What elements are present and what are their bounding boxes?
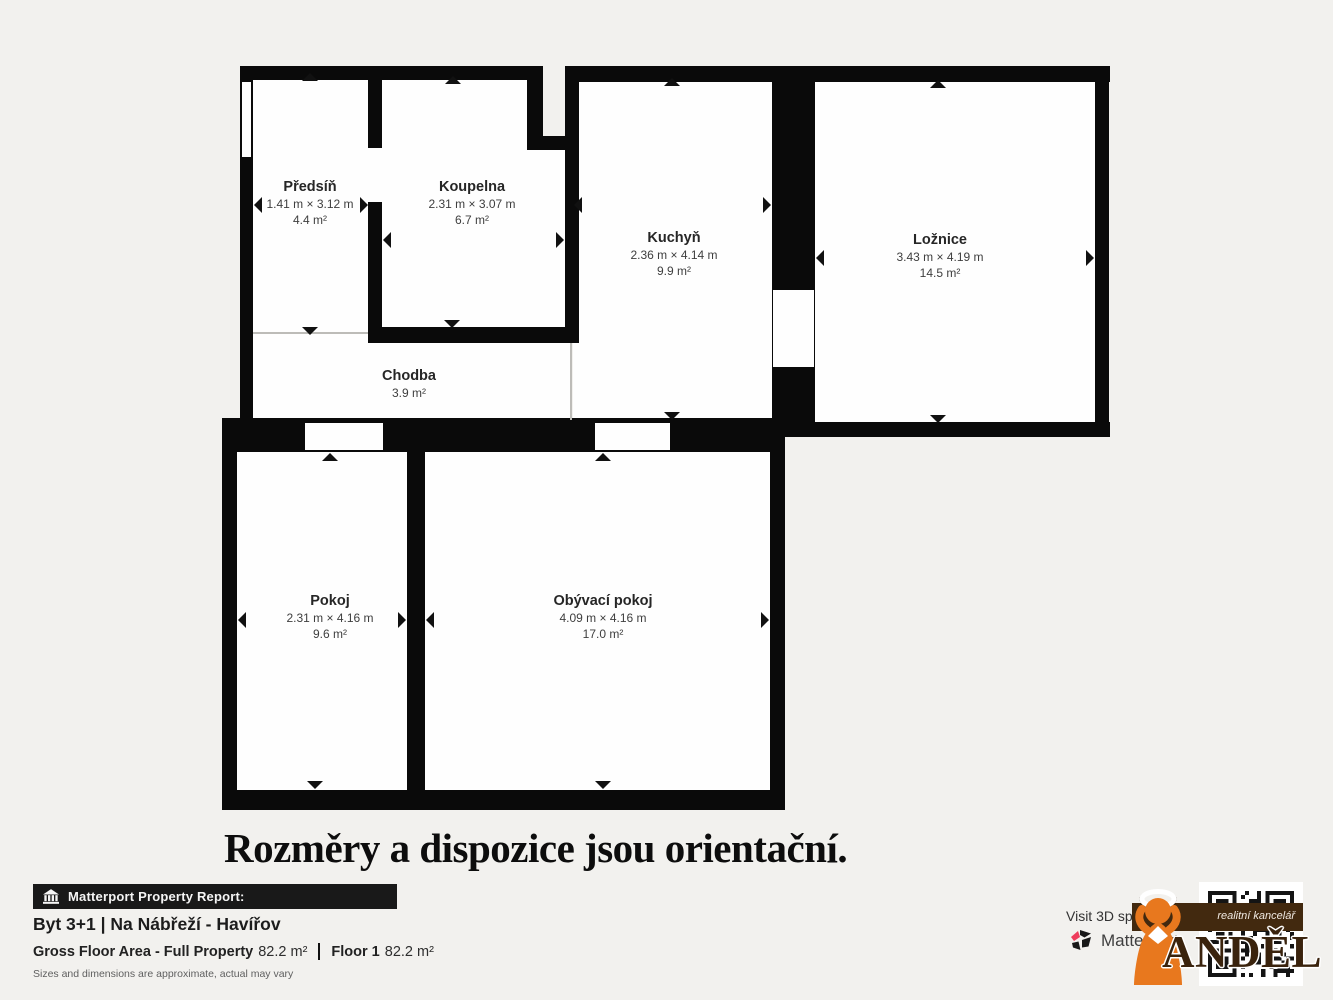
room-label-obyvaci-pokoj: Obývací pokoj 4.09 m × 4.16 m 17.0 m²	[493, 593, 713, 642]
disclaimer-text: Rozměry a dispozice jsou orientační.	[224, 824, 847, 872]
room-area: 6.7 m²	[362, 212, 582, 228]
agency-brand-name: ANDĚL	[1162, 926, 1322, 978]
room-dimensions: 2.36 m × 4.14 m	[564, 247, 784, 263]
wall-arrow-icon	[444, 320, 460, 328]
room-name: Kuchyň	[564, 230, 784, 247]
matterport-logo-icon	[1068, 927, 1095, 954]
report-banner-label: Matterport Property Report:	[68, 889, 245, 904]
door-opening	[595, 423, 670, 450]
wall-arrow-icon	[595, 453, 611, 461]
room-name: Koupelna	[362, 179, 582, 196]
room-area: 3.9 m²	[299, 385, 519, 401]
wall-arrow-icon	[595, 781, 611, 789]
wall	[368, 327, 579, 343]
property-title: Byt 3+1 | Na Nábřeží - Havířov	[33, 914, 281, 935]
wall-arrow-icon	[383, 232, 391, 248]
wall-arrow-icon	[307, 781, 323, 789]
building-icon	[43, 889, 59, 904]
wall	[527, 136, 568, 150]
wall-arrow-icon	[1086, 250, 1094, 266]
wall-arrow-icon	[763, 197, 771, 213]
room-dimensions: 2.31 m × 4.16 m	[220, 610, 440, 626]
wall	[790, 422, 1110, 437]
room-label-pokoj: Pokoj 2.31 m × 4.16 m 9.6 m²	[220, 593, 440, 642]
wall-arrow-icon	[302, 327, 318, 335]
room-label-loznice: Ložnice 3.43 m × 4.19 m 14.5 m²	[830, 232, 1050, 281]
wall-arrow-icon	[930, 80, 946, 88]
report-banner: Matterport Property Report:	[33, 884, 397, 909]
floor-value: 82.2 m²	[385, 944, 434, 960]
room-name: Ložnice	[830, 232, 1050, 249]
wall-arrow-icon	[445, 76, 461, 84]
gross-floor-area-value: 82.2 m²	[258, 944, 307, 960]
wall-arrow-icon	[761, 612, 769, 628]
door-opening	[305, 423, 383, 450]
room-label-koupelna: Koupelna 2.31 m × 3.07 m 6.7 m²	[362, 179, 582, 228]
passage-opening	[773, 290, 814, 367]
wall-arrow-icon	[322, 453, 338, 461]
wall	[222, 790, 785, 810]
room-name: Chodba	[299, 368, 519, 385]
room-area: 17.0 m²	[493, 626, 713, 642]
window-opening	[242, 82, 251, 157]
room-name: Obývací pokoj	[493, 593, 713, 610]
room-area: 14.5 m²	[830, 265, 1050, 281]
wall-arrow-icon	[930, 415, 946, 423]
room-label-kuchyn: Kuchyň 2.36 m × 4.14 m 9.9 m²	[564, 230, 784, 279]
room-name: Pokoj	[220, 593, 440, 610]
approximation-note: Sizes and dimensions are approximate, ac…	[33, 968, 293, 980]
room-area: 9.9 m²	[564, 263, 784, 279]
wall-arrow-icon	[816, 250, 824, 266]
wall-arrow-icon	[664, 412, 680, 420]
wall	[240, 66, 543, 80]
wall-arrow-icon	[556, 232, 564, 248]
divider	[318, 943, 320, 960]
gross-floor-area-label: Gross Floor Area - Full Property	[33, 944, 253, 960]
exterior-notch	[543, 60, 565, 136]
room-label-chodba: Chodba 3.9 m²	[299, 368, 519, 401]
agency-tagline: realitní kancelář	[1217, 910, 1295, 922]
room-boundary-line	[570, 343, 572, 420]
wall-arrow-icon	[664, 78, 680, 86]
room-dimensions: 4.09 m × 4.16 m	[493, 610, 713, 626]
wall	[790, 66, 1110, 82]
room-dimensions: 3.43 m × 4.19 m	[830, 249, 1050, 265]
wall	[770, 418, 785, 810]
wall-arrow-icon	[302, 73, 318, 81]
floor-label: Floor 1	[331, 944, 379, 960]
floor-area-summary: Gross Floor Area - Full Property 82.2 m²…	[33, 943, 434, 960]
room-dimensions: 2.31 m × 3.07 m	[362, 196, 582, 212]
wall	[1095, 66, 1109, 437]
room-area: 9.6 m²	[220, 626, 440, 642]
property-report-page: Předsíň 1.41 m × 3.12 m 4.4 m² Koupelna …	[0, 0, 1333, 1000]
